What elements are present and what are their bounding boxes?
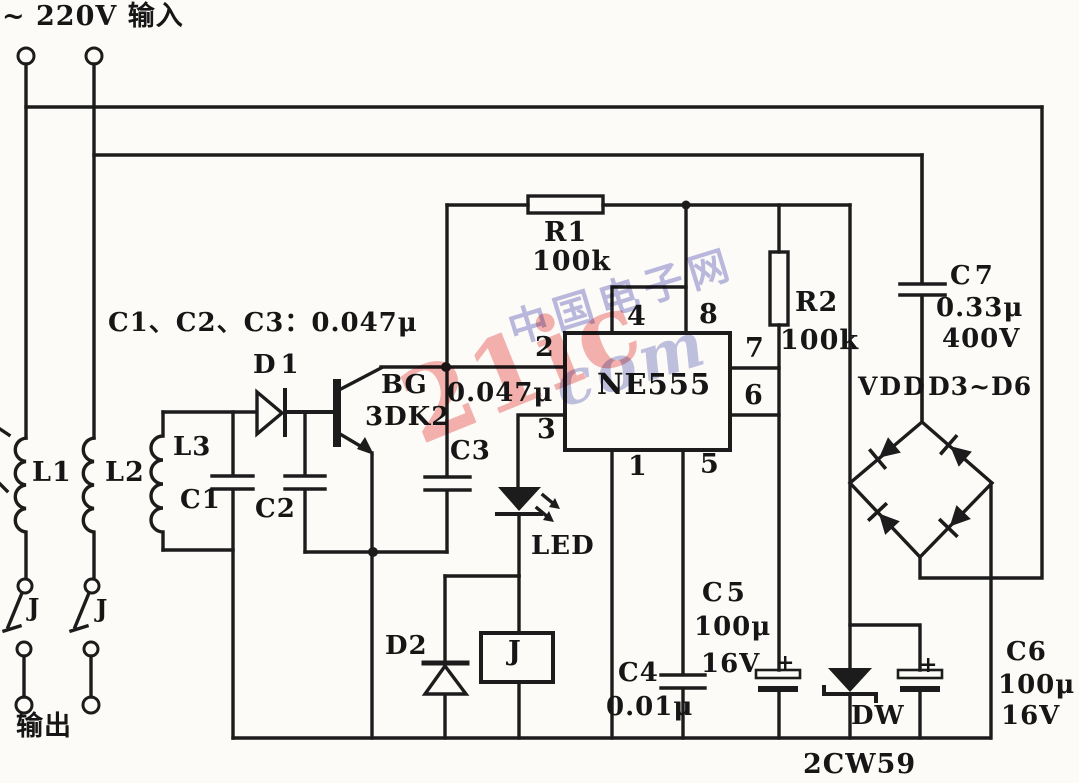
capacitor-c2	[285, 412, 325, 552]
label-c3-value: 0.047μ	[447, 380, 553, 406]
label-c6-value: 100μ	[998, 672, 1075, 698]
pin-8: 8	[699, 301, 719, 328]
label-r2: R2	[795, 289, 838, 316]
label-switch2-j: J	[96, 597, 108, 621]
label-c1: C1	[180, 487, 221, 513]
edge-fragments	[0, 429, 9, 491]
label-c6-voltage: 16V	[1001, 703, 1060, 729]
label-c2: C2	[255, 496, 296, 522]
label-l2: L2	[105, 459, 145, 486]
label-c3: C3	[450, 438, 491, 464]
label-c5-voltage: 16V	[701, 651, 760, 677]
label-c5: C5	[702, 580, 749, 606]
diode-d1	[257, 390, 334, 435]
label-c7-voltage: 400V	[942, 326, 1020, 352]
zener-dw	[824, 205, 876, 738]
power-rails	[26, 107, 1042, 205]
pin-7: 7	[745, 335, 765, 362]
output-label: 输出	[16, 713, 72, 740]
pin-4: 4	[627, 303, 647, 330]
capacitor-c5	[756, 670, 800, 738]
label-vdd: VDD	[858, 374, 927, 399]
label-c4-value: 0.01μ	[606, 694, 693, 720]
label-c4: C4	[618, 660, 659, 686]
pin-3: 3	[537, 416, 557, 443]
plus-mark-c5: +	[776, 652, 795, 674]
label-led: LED	[531, 533, 595, 559]
caption-capacitor-values: C1、C2、C3：0.047μ	[108, 310, 418, 336]
label-bg: BG	[381, 372, 428, 398]
pin-5: 5	[700, 451, 720, 478]
label-d2: D2	[385, 633, 428, 659]
label-c7: C7	[950, 263, 997, 289]
inductor-l1	[15, 438, 26, 578]
label-dw: DW	[851, 703, 905, 729]
label-relay-j: J	[508, 638, 522, 665]
diode-d2-relay-j	[424, 576, 553, 738]
label-d1: D1	[253, 352, 304, 378]
pin-2: 2	[535, 334, 555, 361]
label-c6: C6	[1006, 639, 1047, 665]
label-r1-value: 100k	[532, 248, 611, 275]
label-r2-value: 100k	[780, 327, 859, 354]
label-l3: L3	[173, 434, 211, 460]
resistor-r2	[770, 205, 788, 670]
relay-contact-2	[71, 579, 99, 713]
pin-1: 1	[628, 453, 648, 480]
schematic-page: 中国电子网 com 21ic ~ 220V 输入 输出 C1、C2、C3：0.0…	[0, 0, 1079, 783]
label-bridge-d3-d6: D3~D6	[928, 374, 1032, 399]
label-l1: L1	[32, 459, 72, 486]
pin-6: 6	[744, 382, 764, 409]
label-switch1-j: J	[28, 596, 40, 620]
label-c7-value: 0.33μ	[936, 295, 1023, 321]
label-ne555: NE555	[597, 370, 711, 399]
inductor-l2	[83, 438, 94, 578]
label-bg-model: 3DK2	[365, 404, 450, 430]
resistor-r1	[528, 196, 603, 213]
input-voltage-label: ~ 220V 输入	[2, 3, 184, 30]
label-dw-model: 2CW59	[803, 751, 916, 778]
label-r1: R1	[544, 219, 587, 246]
label-c5-value: 100μ	[694, 614, 771, 640]
plus-mark-c6: +	[919, 654, 938, 676]
